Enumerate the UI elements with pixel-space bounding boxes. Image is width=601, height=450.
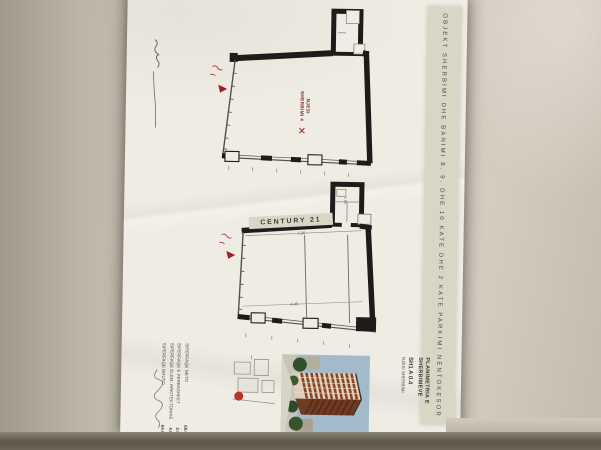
area-label: SIPERFAQE ELEM. ARKITEKTONIKE xyxy=(168,343,174,420)
site-map-thumbnail xyxy=(233,355,276,404)
entrance-arrow xyxy=(219,234,235,259)
floor-plan-lower: 1.80 xyxy=(218,180,379,349)
table-row: SIPERFAQE E PERBASHKET 2.06 m² xyxy=(175,343,182,443)
entrance-arrow xyxy=(210,66,227,93)
unit-code: SH1 A 0.4 xyxy=(405,357,412,427)
desk-surface-left xyxy=(0,0,140,450)
facade-sign-text: CENTURY 21 xyxy=(260,216,321,226)
drawing-sheet: 1.80 xyxy=(120,0,468,441)
table-row: SIPERFAQE ELEM. ARKITEKTONIKE 4.82 m² xyxy=(168,343,175,443)
dimension-bottom: 4.40 xyxy=(290,301,299,306)
area-label: SIPERFAQE E PERBASHKET xyxy=(176,343,182,404)
area-table: SIPERFAQE NETO 58.02 m² SIPERFAQE E PERB… xyxy=(144,342,206,443)
unit-name: NJESI SHERBIMI xyxy=(399,357,405,427)
handwritten-note xyxy=(152,40,159,128)
building-render xyxy=(281,354,370,434)
drawing-title-line1: PLANIMETRIA E xyxy=(422,357,430,427)
drawing-title-block: PLANIMETRIA E SHERBIMEVE SH1 A 0.4 NJESI… xyxy=(389,357,439,428)
area-label: SIPERFAQE NETO xyxy=(184,343,190,382)
dimension-top: 7.30 xyxy=(297,230,306,235)
table-row: SIPERFAQE NETO 58.02 m² xyxy=(183,343,190,443)
unit-label: NJESI SHERBIMI 4 xyxy=(291,82,318,130)
photographed-document: 1.80 xyxy=(0,0,601,450)
table-row: SIPERFAQE BRUTO 64.90 m² xyxy=(160,343,167,443)
core-dimension: 1.80 xyxy=(343,197,347,204)
unit-label-line1: NJESI xyxy=(304,82,311,130)
desk-edge-shadow xyxy=(0,432,601,450)
unit-label-line2: SHERBIMI 4 xyxy=(299,82,306,130)
drawing-title-line2: SHERBIMEVE xyxy=(415,357,423,427)
area-label: SIPERFAQE BRUTO xyxy=(161,343,167,385)
